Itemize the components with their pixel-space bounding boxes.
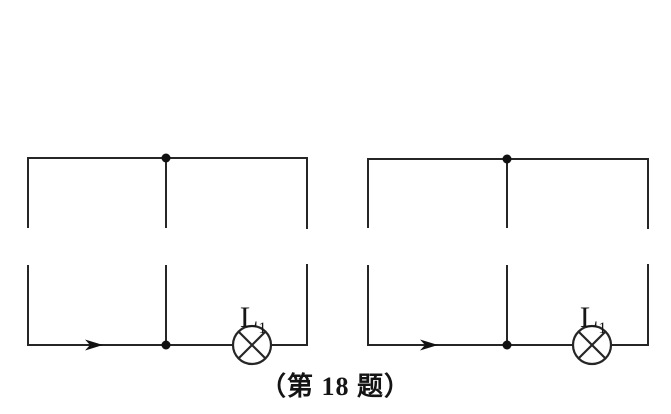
junction-dot-bottom <box>503 341 512 350</box>
lamp-label-main: L <box>240 301 258 334</box>
lamp-label: L1 <box>580 301 606 337</box>
circuit-right: L1 <box>368 155 648 365</box>
circuit-diagrams-svg: L1 L1 <box>0 0 671 414</box>
junction-dot-top <box>503 155 512 164</box>
figure-caption: （第 18 题） <box>0 371 671 402</box>
junction-dot-bottom <box>162 341 171 350</box>
lamp-label-main: L <box>580 301 598 334</box>
lamp-label-subscript: 1 <box>258 320 266 337</box>
left-circuit-top-rail-wire <box>28 158 307 228</box>
lamp-label: L1 <box>240 301 266 337</box>
figure-question-18: L1 L1 （第 18 题） <box>0 0 671 414</box>
junction-dot-top <box>162 154 171 163</box>
lamp-label-subscript: 1 <box>598 320 606 337</box>
circuit-left: L1 <box>28 154 307 365</box>
